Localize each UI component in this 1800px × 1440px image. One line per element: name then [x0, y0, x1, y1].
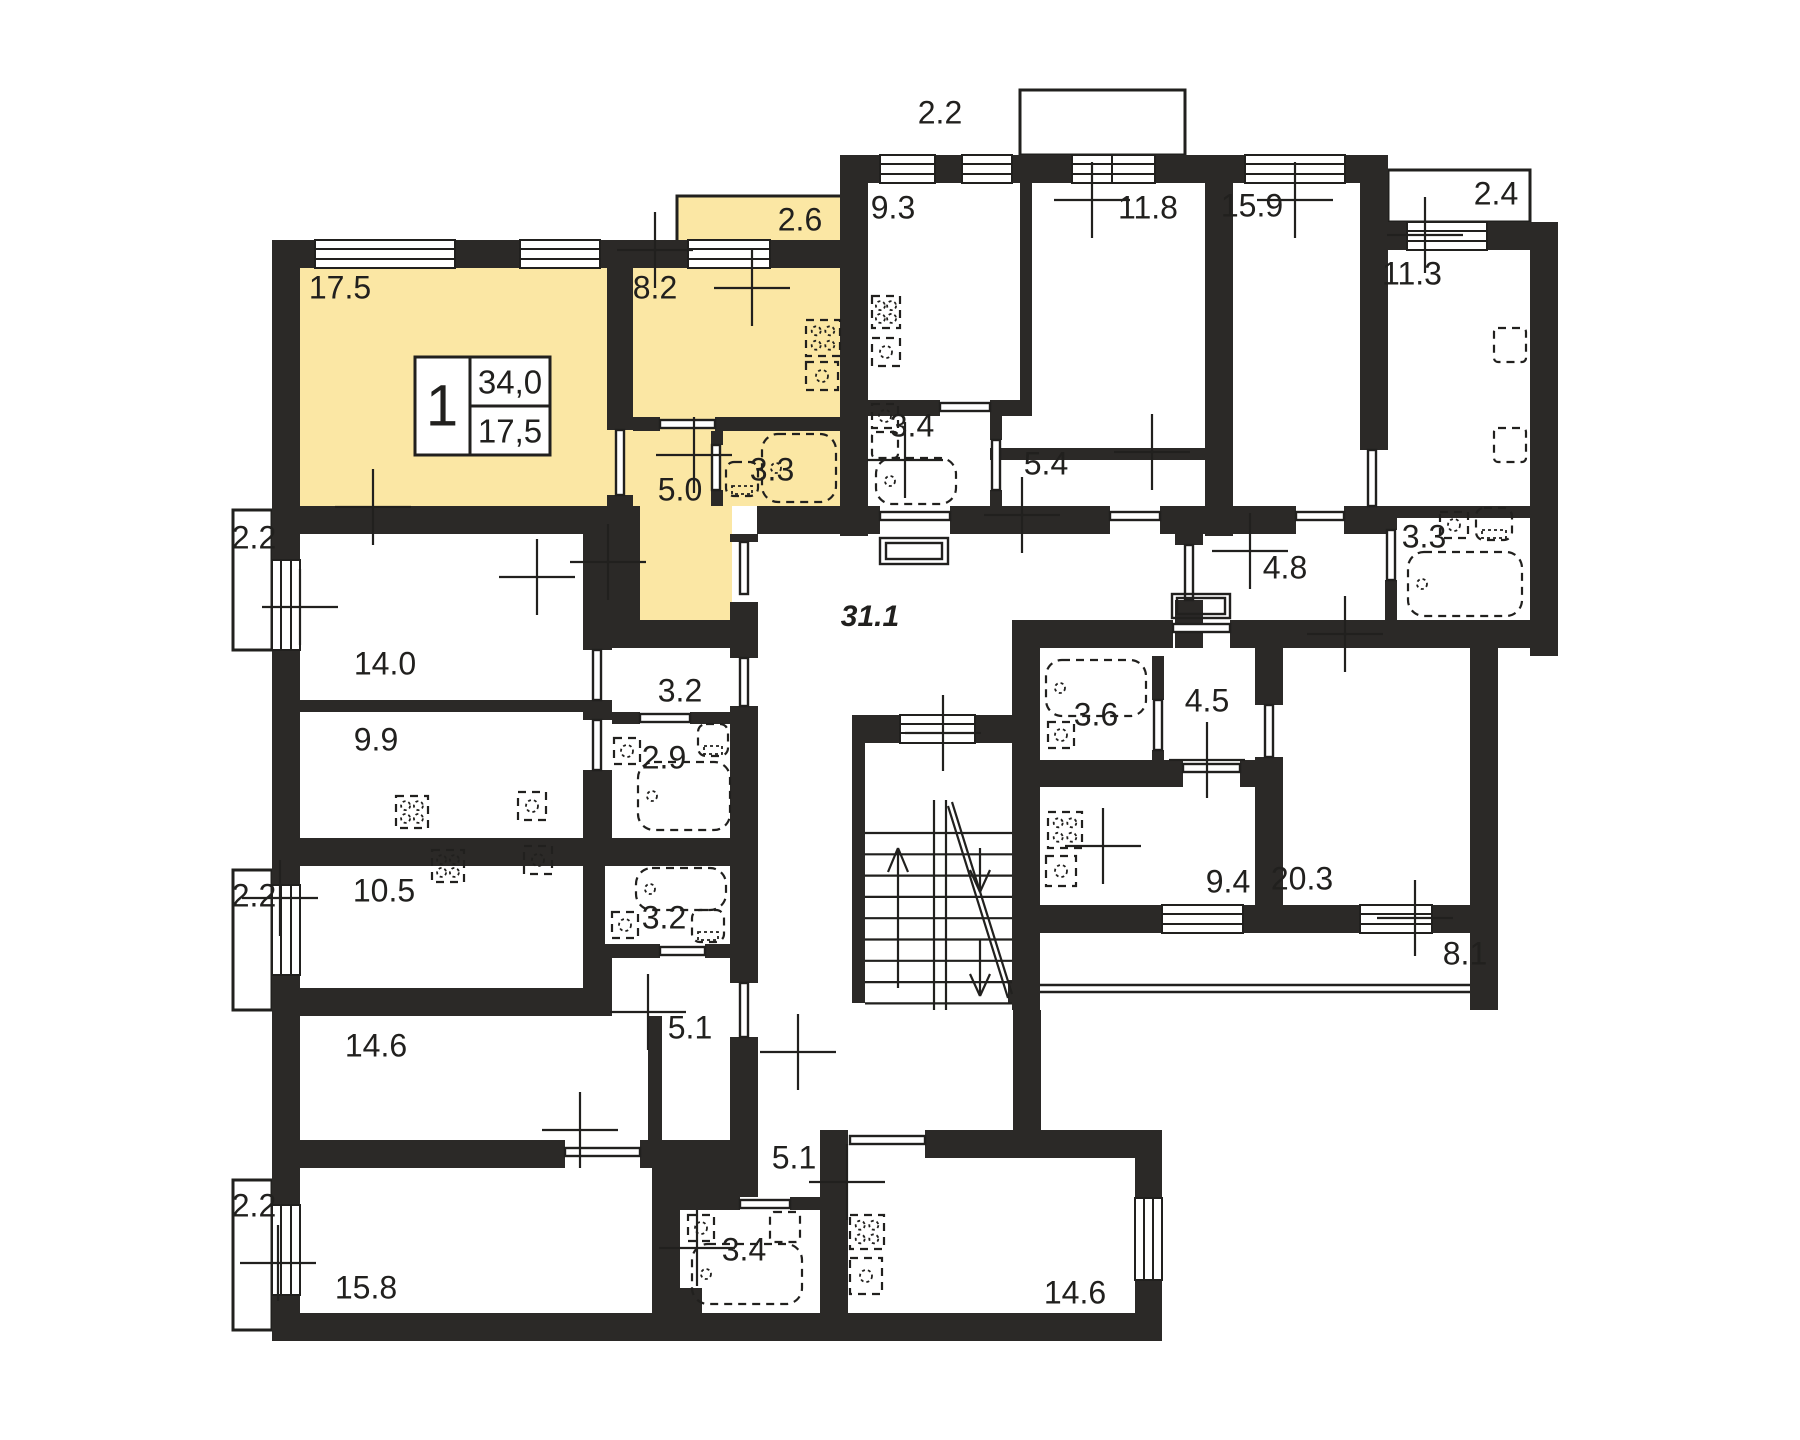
room-label-5-0-12: 5.0 — [658, 471, 702, 507]
room-label-15-8-33: 15.8 — [335, 1269, 397, 1305]
room-label-5-1-31: 5.1 — [772, 1139, 816, 1175]
room-label-8-2-8: 8.2 — [633, 269, 677, 305]
room-label-2-4-4: 2.4 — [1474, 175, 1518, 211]
room-label-10-5-24: 10.5 — [353, 872, 415, 908]
floor-plan-page: 1 34,0 17,5 2.29.311.815.92.411.32.617.5… — [0, 0, 1800, 1440]
balcony-2-2-top — [1020, 90, 1185, 155]
balcony-8-1-railing — [1030, 985, 1470, 992]
room-label-2-6-6: 2.6 — [778, 201, 822, 237]
room-label-3-6-21: 3.6 — [1074, 696, 1118, 732]
room-label-2-2-13: 2.2 — [232, 519, 276, 555]
room-label-3-2-27: 3.2 — [642, 899, 686, 935]
room-label-11-8-2: 11.8 — [1118, 189, 1178, 225]
room-label-2-2-0: 2.2 — [918, 94, 962, 130]
room-label-11-3-5: 11.3 — [1382, 255, 1442, 291]
highlighted-apartment-fill — [300, 268, 840, 620]
apartment-stamp: 1 34,0 17,5 — [415, 357, 550, 455]
stamp-total-area: 34,0 — [478, 364, 542, 401]
room-label-3-3-11: 3.3 — [750, 451, 794, 487]
floor-plan-svg: 1 34,0 17,5 2.29.311.815.92.411.32.617.5… — [0, 0, 1800, 1440]
room-label-20-3-26: 20.3 — [1271, 860, 1333, 896]
room-label-8-1-29: 8.1 — [1443, 935, 1487, 971]
room-label-2-2-32: 2.2 — [232, 1187, 276, 1223]
staircase — [865, 800, 1012, 1010]
room-label-9-4-25: 9.4 — [1206, 863, 1250, 899]
room-label-3-2-18: 3.2 — [658, 672, 702, 708]
room-label-17-5-7: 17.5 — [309, 269, 371, 305]
stamp-rooms: 1 — [426, 373, 458, 438]
room-label-31-1-16: 31.1 — [841, 600, 899, 633]
room-label-5-1-30: 5.1 — [668, 1009, 712, 1045]
room-label-3-4-9: 3.4 — [890, 407, 934, 443]
room-label-9-9-19: 9.9 — [354, 721, 398, 757]
room-label-9-3-1: 9.3 — [871, 189, 915, 225]
room-label-14-6-35: 14.6 — [1044, 1274, 1106, 1310]
room-label-14-6-28: 14.6 — [345, 1027, 407, 1063]
room-label-2-2-23: 2.2 — [232, 877, 276, 913]
room-label-2-9-20: 2.9 — [642, 739, 686, 775]
stamp-living-area: 17,5 — [478, 413, 542, 450]
room-label-15-9-3: 15.9 — [1221, 187, 1283, 223]
room-label-14-0-17: 14.0 — [354, 645, 416, 681]
room-label-4-8-14: 4.8 — [1263, 549, 1307, 585]
room-label-3-3-15: 3.3 — [1402, 518, 1446, 554]
room-label-5-4-10: 5.4 — [1024, 445, 1068, 481]
room-label-4-5-22: 4.5 — [1185, 682, 1229, 718]
room-label-3-4-34: 3.4 — [722, 1231, 766, 1267]
